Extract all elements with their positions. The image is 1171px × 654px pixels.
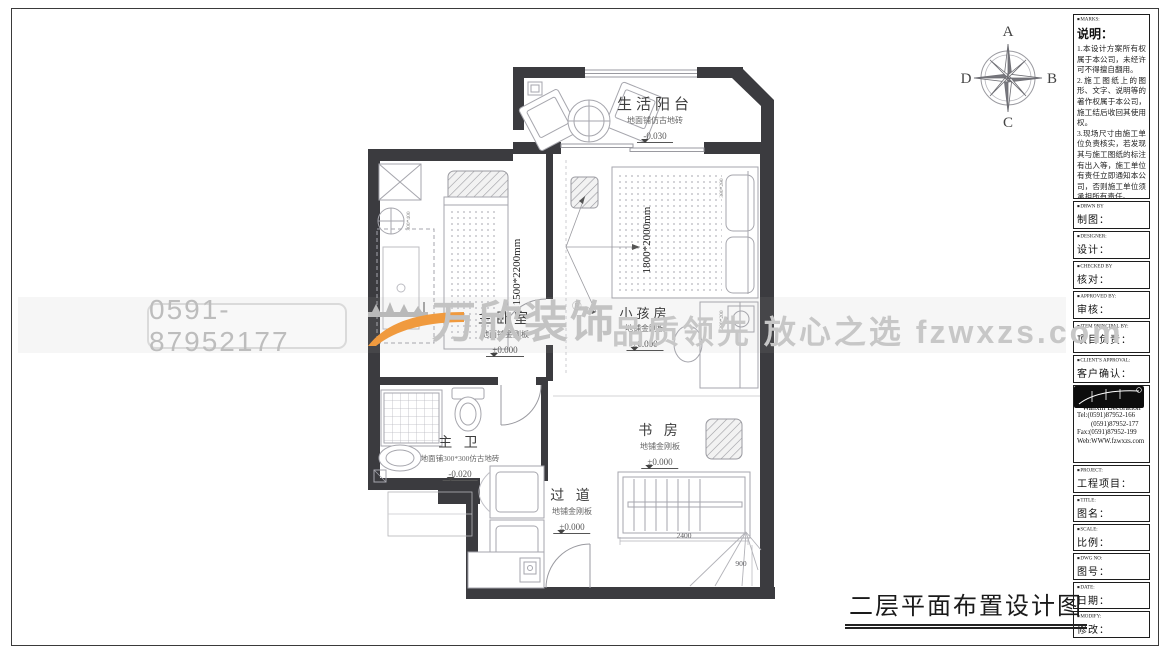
marks-note-3: 3.现场尺寸由施工单位负责核实，若发现其与施工图纸的标注有出入等，施工单位有责任… — [1077, 129, 1146, 199]
dwg-no-label-en: DWG NO: — [1077, 555, 1127, 561]
room-name: 书 房 — [638, 420, 682, 440]
room-name: 生活阳台 — [617, 93, 693, 114]
title-label-zh: 图名： — [1077, 505, 1146, 520]
watermark-brand-text: 万欣装饰 — [432, 299, 616, 347]
compass-rose-icon: A B C D — [960, 20, 1060, 130]
designer-label-en: DESIGNER: — [1077, 233, 1127, 239]
room-label-study: 书 房 地铺金刚板 ±0.000 — [638, 420, 682, 470]
room-level: -0.020 — [442, 469, 477, 481]
fan-dimension: 300*400 — [406, 211, 412, 231]
company-tel1: Tel:(0591)87952-166 — [1077, 412, 1135, 421]
titleblock-company: 万欣装饰 Wanxin Decoration Tel:(0591)87952-1… — [1073, 385, 1150, 463]
room-label-balcony: 生活阳台 地面铺仿古地砖 -0.030 — [617, 93, 693, 144]
watermark-phone: 0591-87952177 — [147, 303, 347, 349]
titleblock-title: TITLE: 图名： — [1073, 495, 1150, 522]
watermark-slogan: 品质领先 放心之选 fzwxzs.com — [612, 307, 1124, 353]
compass-west-label: D — [961, 71, 972, 87]
client-approval-label-zh: 客户确认： — [1077, 365, 1146, 380]
kids-bed-dimension: 1800*2000mm — [641, 206, 653, 273]
registered-mark-icon: ® — [572, 298, 582, 313]
master-bed-dimension: 1500*2200mm — [511, 238, 523, 305]
date-label-zh: 日期： — [1077, 592, 1146, 607]
titleblock-project: PROJECT: 工程项目： — [1073, 465, 1150, 493]
checked-by-label-en: CHECKED BY — [1077, 263, 1127, 269]
study-column — [706, 419, 742, 459]
scale-label-zh: 比例： — [1077, 534, 1146, 549]
titleblock-designer: DESIGNER: 设计： — [1073, 231, 1150, 259]
company-logo-icon — [1074, 386, 1144, 408]
designer-label-zh: 设计： — [1077, 241, 1146, 256]
stair-depth-dimension: 900 — [735, 559, 747, 568]
titleblock-dwg-no: DWG NO: 图号： — [1073, 553, 1150, 580]
company-web: Web:WWW.fzwxzs.com — [1077, 438, 1144, 447]
drawn-by-label-zh: 制图： — [1077, 211, 1146, 226]
compass-south-label: C — [1003, 115, 1013, 130]
company-fax: Fax:(0591)87952-199 — [1077, 429, 1137, 438]
dwg-no-label-zh: 图号： — [1077, 563, 1146, 578]
approved-by-label-en: APPROVED BY: — [1077, 293, 1127, 299]
room-floor-note: 地铺金刚板 — [638, 441, 682, 452]
room-level: ±0.000 — [553, 522, 590, 534]
sheet-title: 二层平面布置设计图 — [845, 586, 1087, 629]
titleblock-drawn-by: DRWN BY 制图： — [1073, 201, 1150, 229]
marks-note-1: 1.本设计方案所有权属于本公司，未经许可不得擅自翻用。 — [1077, 44, 1146, 76]
marks-note-2: 2.施工图纸上的图形、文字、说明等的著作权属于本公司，施工结后收回其使用权。 — [1077, 76, 1146, 129]
niche-top-dimension: 300*200 — [719, 178, 725, 198]
room-floor-note: 地面铺仿古地砖 — [617, 115, 693, 126]
stairs — [618, 472, 761, 586]
checked-by-label-zh: 核对： — [1077, 271, 1146, 286]
drawing-sheet: 1500*2200mm 1800*2000mm 300*400 300*200 … — [0, 0, 1171, 654]
room-level: -0.030 — [637, 131, 672, 143]
room-name: 过 道 — [550, 485, 594, 505]
room-floor-note: 地面铺300*300仿古地砖 — [421, 453, 500, 464]
stair-width-dimension: 2400 — [677, 531, 692, 540]
project-label-zh: 工程项目： — [1077, 475, 1146, 490]
room-level: ±0.000 — [641, 457, 678, 469]
scale-label-en: SCALE: — [1077, 526, 1127, 532]
titleblock-marks: MARKS: 说明： 1.本设计方案所有权属于本公司，未经许可不得擅自翻用。 2… — [1073, 14, 1150, 199]
titleblock-checked-by: CHECKED BY 核对： — [1073, 261, 1150, 289]
title-label-en: TITLE: — [1077, 497, 1127, 503]
marks-label-zh: 说明： — [1077, 25, 1146, 42]
project-label-en: PROJECT: — [1077, 467, 1127, 473]
room-name: 主 卫 — [421, 432, 500, 452]
compass-north-label: A — [1003, 24, 1014, 40]
titleblock-client-approval: CLIENT'S APPROVAL: 客户确认： — [1073, 355, 1150, 383]
room-label-corridor: 过 道 地铺金刚板 ±0.000 — [550, 485, 594, 535]
kids-room-furniture — [566, 160, 758, 388]
compass-east-label: B — [1047, 71, 1057, 87]
modify-label-zh: 修改： — [1077, 621, 1146, 636]
room-label-master-bath: 主 卫 地面铺300*300仿古地砖 -0.020 — [421, 432, 500, 482]
titleblock-scale: SCALE: 比例： — [1073, 524, 1150, 551]
client-approval-label-en: CLIENT'S APPROVAL: — [1077, 357, 1127, 363]
room-floor-note: 地铺金刚板 — [550, 506, 594, 517]
company-tel2: (0591)87952-177 — [1077, 421, 1139, 430]
marks-label-en: MARKS: — [1077, 16, 1127, 22]
drawn-by-label-en: DRWN BY — [1077, 203, 1127, 209]
